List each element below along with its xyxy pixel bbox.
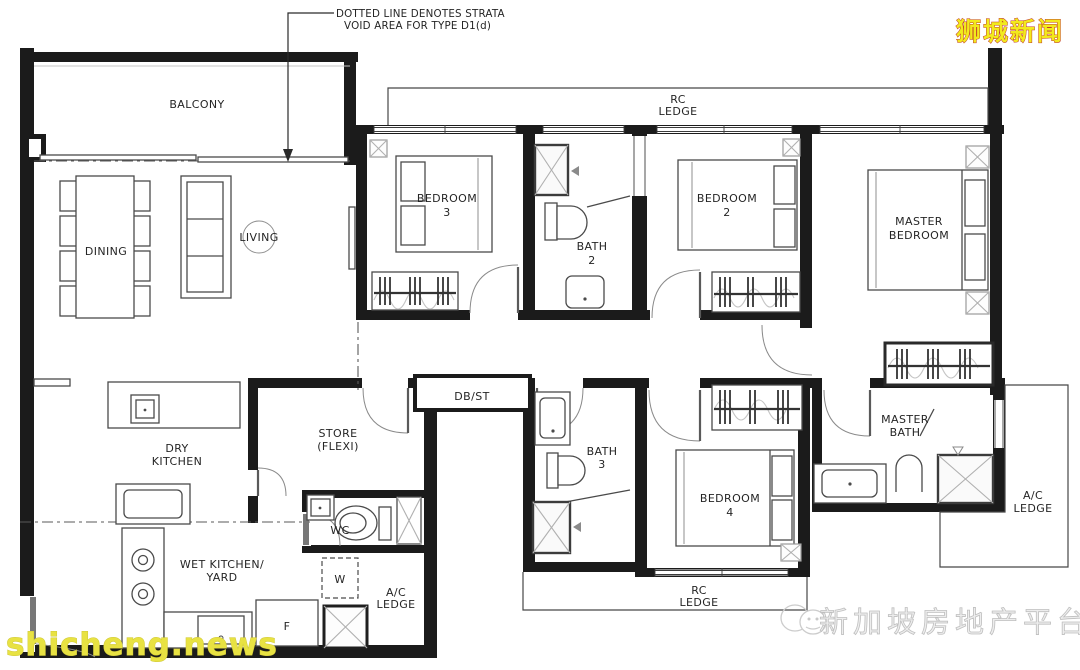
tv-console (349, 207, 355, 269)
watermark-site: shicheng.news (6, 627, 278, 663)
dry-kitchen-furniture (34, 379, 240, 524)
master-bedroom-door (762, 325, 812, 375)
bedroom4-door (649, 390, 700, 441)
window-bedroom3 (374, 125, 516, 134)
label-store: STORE (319, 427, 358, 440)
ac-unit (783, 139, 800, 156)
window-bedroom2 (657, 125, 792, 134)
toilet (896, 455, 922, 492)
sink (307, 495, 334, 520)
pillow (774, 166, 795, 204)
bedroom3-door (470, 265, 518, 313)
toilet (547, 453, 585, 488)
annotation-leader (283, 13, 334, 162)
label-bath3-num: 3 (598, 458, 605, 471)
label-living: LIVING (239, 231, 278, 244)
side-table (966, 292, 989, 314)
label-ac-ledge-right: A/C (1023, 489, 1043, 502)
pillow (772, 500, 792, 540)
shower (938, 455, 993, 503)
label-washer: W (334, 573, 345, 586)
shower (397, 497, 421, 544)
wc-fixtures (307, 495, 421, 544)
floor-plan-page: DOTTED LINE DENOTES STRATA VOID AREA FOR… (0, 0, 1080, 670)
counter (108, 382, 240, 428)
label-master-bath: MASTER (881, 413, 929, 426)
ac-unit (370, 140, 387, 157)
wardrobe (712, 385, 802, 430)
label-store2: (FLEXI) (317, 440, 359, 453)
master-bedroom-furniture (868, 146, 993, 385)
label-dry-kitchen: DRY (165, 442, 188, 455)
label-master-bath2: BATH (890, 426, 921, 439)
label-bedroom3: BEDROOM (417, 192, 477, 205)
pillow (965, 234, 985, 280)
side-table (966, 146, 989, 168)
vanity (814, 464, 886, 503)
hall-door (258, 468, 286, 496)
watermark-platform: 新加坡房地产平台 (819, 605, 1080, 639)
watermark-brand: 狮城新闻 (956, 17, 1064, 46)
label-master-bedroom2: BEDROOM (889, 229, 949, 242)
bedroom4-furniture (676, 385, 802, 561)
shower-head-icon (573, 522, 581, 532)
label-bedroom2-num: 2 (723, 206, 730, 219)
pillow (965, 180, 985, 226)
vanity (535, 392, 570, 445)
shower-head-icon (953, 447, 963, 455)
label-balcony: BALCONY (169, 98, 224, 111)
label-wet-kitchen: WET KITCHEN/ (180, 558, 264, 571)
bedroom2-furniture (678, 139, 800, 312)
bath2-fixtures (535, 145, 604, 308)
pillow (774, 209, 795, 247)
wardrobe (372, 272, 458, 310)
pillow (401, 206, 425, 245)
label-bedroom3-num: 3 (443, 206, 450, 219)
shower (533, 502, 570, 553)
shower (535, 145, 568, 195)
rc-ledge-bottom-outline (523, 572, 807, 610)
toilet (545, 203, 587, 240)
master-bath-door (824, 390, 870, 436)
label-dining: DINING (85, 245, 127, 258)
label-master-bedroom: MASTER (895, 215, 943, 228)
label-dbst: DB/ST (454, 390, 489, 403)
window-bath2 (543, 125, 624, 134)
bath2-door-leaf (587, 196, 630, 207)
floor-plan-drawing: DOTTED LINE DENOTES STRATA VOID AREA FOR… (0, 0, 1080, 670)
label-bath2-num: 2 (588, 254, 595, 267)
annotation-line1: DOTTED LINE DENOTES STRATA (336, 8, 505, 20)
wardrobe (712, 272, 800, 312)
label-dry-kitchen2: KITCHEN (152, 455, 202, 468)
label-bath3: BATH (587, 445, 618, 458)
label-wc: WC (330, 524, 349, 537)
vanity (566, 276, 604, 308)
label-bedroom2: BEDROOM (697, 192, 757, 205)
walk-in-wardrobe (885, 343, 993, 385)
bedroom3-furniture (370, 140, 492, 310)
label-bedroom4-num: 4 (726, 506, 733, 519)
shower-head-icon (571, 166, 579, 176)
walls (20, 48, 1005, 658)
annotation-line2: VOID AREA FOR TYPE D1(d) (344, 20, 491, 32)
label-rc-ledge-top2: LEDGE (658, 105, 697, 118)
store-door (363, 388, 408, 433)
ac-condenser (324, 606, 367, 648)
label-bedroom4: BEDROOM (700, 492, 760, 505)
label-bath2: BATH (577, 240, 608, 253)
label-fridge: F (284, 620, 291, 633)
window-master-bedroom (820, 125, 984, 134)
ac-unit (781, 544, 801, 561)
label-wet-kitchen2: YARD (205, 571, 237, 584)
pillow (772, 456, 792, 496)
label-ac-ledge-yard2: LEDGE (376, 598, 415, 611)
label-rc-ledge-bottom2: LEDGE (679, 596, 718, 609)
bath3-fixtures (533, 392, 585, 553)
label-ac-ledge-right2: LEDGE (1013, 502, 1052, 515)
